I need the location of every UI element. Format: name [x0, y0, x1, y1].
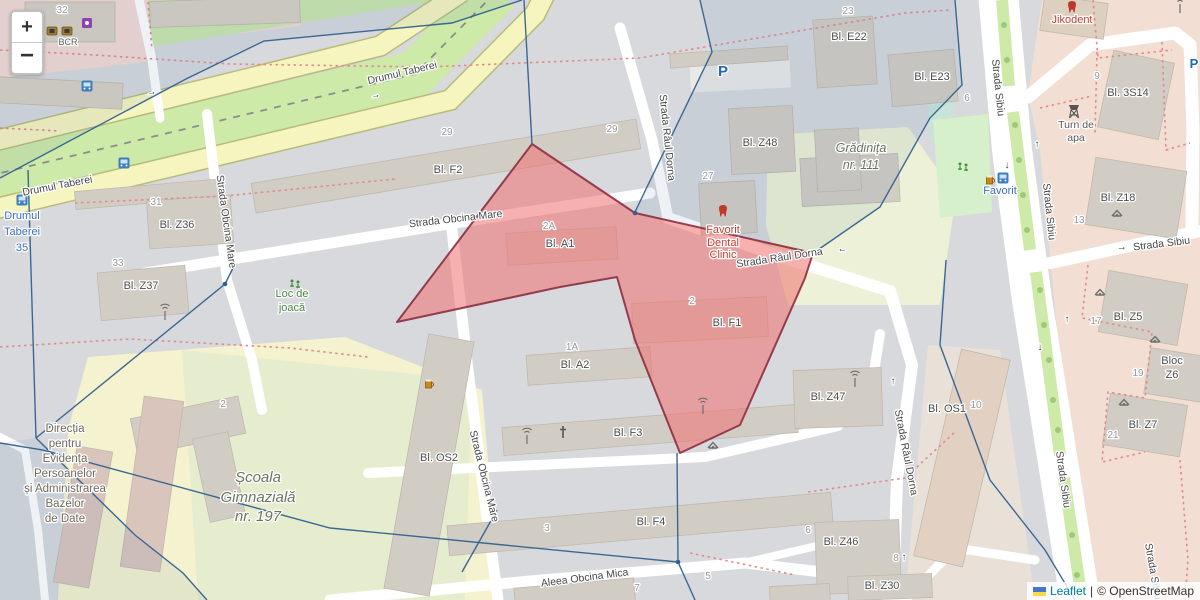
- building-label: Bl. Z18: [1101, 192, 1136, 204]
- house-number: 7: [634, 583, 640, 594]
- house-number: 21: [1107, 430, 1119, 441]
- leaflet-link[interactable]: Leaflet: [1050, 584, 1086, 598]
- house-number: 32: [56, 5, 68, 16]
- house-number: 2: [220, 399, 226, 410]
- atm-icon: [62, 27, 72, 35]
- building-label: Bl. Z46: [824, 536, 859, 548]
- building: [97, 265, 189, 320]
- ukraine-flag-icon: [1033, 587, 1046, 596]
- bus-icon: [998, 173, 1009, 184]
- house-number: 29: [606, 124, 618, 135]
- shop-icon: [82, 18, 92, 28]
- building-label: Bl. Z36: [160, 219, 195, 231]
- poi-label: BCR: [58, 37, 78, 47]
- building-label: Bl. Z48: [743, 137, 778, 149]
- house-number: 31: [150, 197, 162, 208]
- house-number: 27: [702, 171, 714, 182]
- house-number: 19: [1132, 368, 1144, 379]
- osm-attribution: © OpenStreetMap: [1097, 584, 1194, 598]
- building-label: Bl. F1: [713, 317, 742, 329]
- building-label: Bl. F2: [434, 164, 463, 176]
- building-label: Bl. OS1: [928, 403, 966, 415]
- building: [1098, 271, 1188, 346]
- oneway-arrow: ↑: [1065, 314, 1070, 325]
- building-label: Bl. F4: [637, 516, 666, 528]
- building-label: Bl. 3S14: [1107, 87, 1149, 99]
- zoom-control: + −: [10, 10, 44, 75]
- house-number: 1A: [566, 342, 579, 353]
- poi-label: nr. 111: [843, 158, 880, 172]
- house-number: 8: [893, 553, 899, 564]
- parking-icon: P: [718, 63, 728, 80]
- oneway-arrow: ←: [837, 243, 849, 256]
- oneway-arrow: ↑: [891, 376, 896, 387]
- poi-label: Școala: [235, 469, 281, 486]
- zoom-in-button[interactable]: +: [12, 12, 42, 43]
- house-number: 3: [544, 523, 550, 534]
- building-label: Bl. Z37: [124, 280, 159, 292]
- poi-label: pentru: [49, 438, 82, 450]
- oneway-arrow: ↑: [1035, 139, 1040, 150]
- boundary-line: [677, 453, 678, 562]
- poi-label: joacă: [278, 302, 306, 314]
- building-label: Bl. A1: [546, 238, 575, 250]
- poi-label: Taberei: [4, 226, 40, 238]
- house-number: 6: [964, 93, 970, 104]
- poi-label: Loc de: [275, 288, 308, 300]
- boundary-vertex: [223, 282, 228, 287]
- poi-label: Persoanelor: [34, 468, 96, 480]
- house-number: 9: [1094, 71, 1100, 82]
- map-canvas: Drumul TabereiDrumul TabereiStrada Obcin…: [0, 0, 1200, 600]
- poi-label: nr. 197: [235, 508, 282, 525]
- building-label: Bl. F3: [614, 427, 643, 439]
- building-label: Bl. E22: [831, 31, 866, 43]
- building-label: Bl. A2: [561, 359, 590, 371]
- building: [769, 583, 830, 600]
- bus-icon: [119, 158, 130, 169]
- poi-label: 35: [16, 242, 28, 254]
- boundary-vertex: [633, 211, 638, 216]
- house-number: 29: [441, 127, 453, 138]
- building-label: Bl. Z7: [1129, 419, 1158, 431]
- building-label: Bl. Z47: [811, 391, 846, 403]
- oneway-arrow: ↑: [902, 552, 907, 563]
- atm-icon: [47, 27, 57, 35]
- parking-icon: P: [1190, 56, 1199, 71]
- building-label: Bl. OS2: [420, 452, 458, 464]
- house-number: 13: [1073, 215, 1085, 226]
- house-number: 10: [970, 400, 982, 411]
- building-label: Bl. Z30: [865, 580, 900, 592]
- oneway-arrow: →: [1116, 242, 1127, 254]
- poi-label: Evidența: [43, 453, 88, 465]
- building-label: Bloc: [1161, 355, 1183, 367]
- poi-label: Jikodent: [1052, 14, 1093, 26]
- boundary-vertex: [676, 560, 681, 565]
- bus-icon: [82, 81, 93, 92]
- building-label: Bl. Z5: [1114, 311, 1143, 323]
- house-number: 5: [705, 571, 711, 582]
- poi-label: apa: [1067, 132, 1085, 144]
- house-number: 33: [112, 258, 124, 269]
- poi-label: Dental: [707, 237, 739, 249]
- attribution-separator: |: [1090, 584, 1093, 598]
- oneway-arrow: ↓: [1038, 342, 1043, 353]
- building-label: Bl. E23: [914, 71, 949, 83]
- poi-label: Favorit: [983, 185, 1017, 197]
- poi-label: și Administrarea: [24, 483, 106, 495]
- house-number: 23: [842, 6, 854, 17]
- zoom-out-button[interactable]: −: [12, 43, 42, 73]
- oneway-arrow: ↓: [1005, 160, 1010, 171]
- house-number: 6: [805, 525, 811, 536]
- favorit-park: [933, 114, 992, 218]
- poi-label: de Date: [45, 513, 85, 525]
- poi-label: Direcția: [46, 423, 86, 435]
- attribution-bar: Leaflet | © OpenStreetMap: [1027, 582, 1200, 600]
- building-label: Z6: [1166, 369, 1179, 381]
- poi-label: Grădinița: [836, 141, 887, 155]
- poi-label: Clinic: [710, 249, 737, 261]
- house-number: 17: [1090, 316, 1102, 327]
- poi-label: Drumul: [4, 210, 39, 222]
- house-number: 2A: [543, 221, 556, 232]
- map-viewport[interactable]: Drumul TabereiDrumul TabereiStrada Obcin…: [0, 0, 1200, 600]
- poi-label: Turn de: [1058, 119, 1094, 131]
- poi-label: Bazelor: [46, 498, 85, 510]
- poi-label: Gimnazială: [220, 489, 295, 506]
- house-number: 2: [689, 296, 695, 307]
- poi-label: Favorit: [706, 224, 740, 236]
